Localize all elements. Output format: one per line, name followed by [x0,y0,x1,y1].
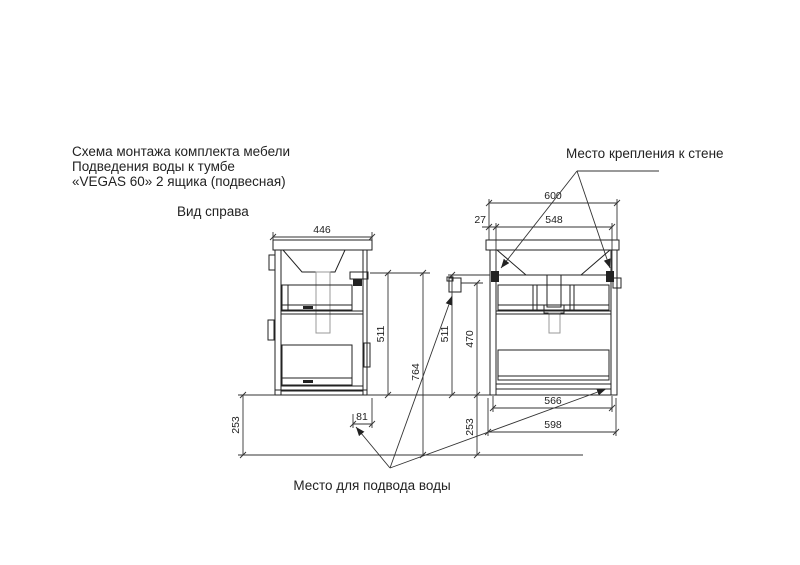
side-wall-bracket-plate [350,272,368,279]
dim-mount-span: 27 548 [474,214,615,271]
dimensions: 446 600 27 548 511 [230,190,620,458]
side-top-drawer [282,285,352,310]
dim-side-height: 511 [375,270,391,398]
dim-label-470: 470 [464,330,476,348]
side-drawer-tab-bottom [268,320,274,340]
dim-water-wall-offset: 81 [350,398,375,428]
front-top-drawer [498,285,609,310]
dim-front-floor-gap: 253 [464,395,480,458]
water-supply-box [449,278,461,292]
dim-label-566: 566 [544,395,562,407]
dim-label-548: 548 [545,214,563,226]
mounting-scheme-drawing: Схема монтажа комплекта мебели Подведени… [0,0,800,565]
side-drain-pipe [316,272,330,333]
wall-mount-label: Место крепления к стене [566,146,724,161]
side-wall-bracket [353,279,362,286]
dim-inner-width: 566 [490,395,615,412]
dim-side-floor-gap: 253 [230,392,246,458]
front-drain-pipe-lower [549,313,560,333]
dim-water-height: 470 [464,280,480,398]
water-leader-side [356,427,390,468]
water-leader-front [390,389,606,468]
title-line-2: Подведения воды к тумбе [72,159,235,174]
front-drain-pipe [547,275,561,307]
dim-label-598: 598 [544,419,562,431]
title-line-1: Схема монтажа комплекта мебели [72,144,290,159]
wall-mount-leader-right [577,171,610,268]
view-name-label: Вид справа [177,204,249,219]
title-line-3: «VEGAS 60» 2 ящика (подвесная) [72,174,286,189]
dim-front-height: 511 [439,272,455,398]
wall-mount-leader-left [501,171,577,268]
side-bottom-drawer-slide [303,380,313,383]
dim-label-81: 81 [356,411,368,423]
water-supply-point [447,277,461,292]
front-bottom-panel [496,384,611,389]
dim-side-total-height: 764 [410,270,426,458]
side-bottom-drawer [282,345,352,385]
side-basin [283,250,345,272]
dim-label-511-side: 511 [375,325,387,342]
dim-label-600: 600 [544,190,562,202]
callouts: Место крепления к стене Место для подвод… [293,146,723,493]
dim-label-253-side: 253 [230,416,242,434]
front-wall-bracket-left [491,271,499,282]
water-leader-box [390,296,452,468]
front-body [490,250,617,395]
dim-label-764: 764 [410,363,422,381]
drawing-page: Схема монтажа комплекта мебели Подведени… [0,0,800,565]
front-view [486,240,621,395]
water-supply-label: Место для подвода воды [293,478,450,493]
side-countertop [273,240,372,250]
dim-label-446: 446 [313,224,331,236]
side-drawer-tab-top [269,255,275,270]
dim-label-253-front: 253 [464,418,476,436]
dim-label-27: 27 [474,214,486,226]
front-basin [497,250,610,275]
side-top-drawer-slide [303,306,313,309]
front-countertop [486,240,619,250]
side-view [268,240,372,395]
dim-side-depth: 446 [270,224,375,240]
title-block: Схема монтажа комплекта мебели Подведени… [72,144,290,219]
